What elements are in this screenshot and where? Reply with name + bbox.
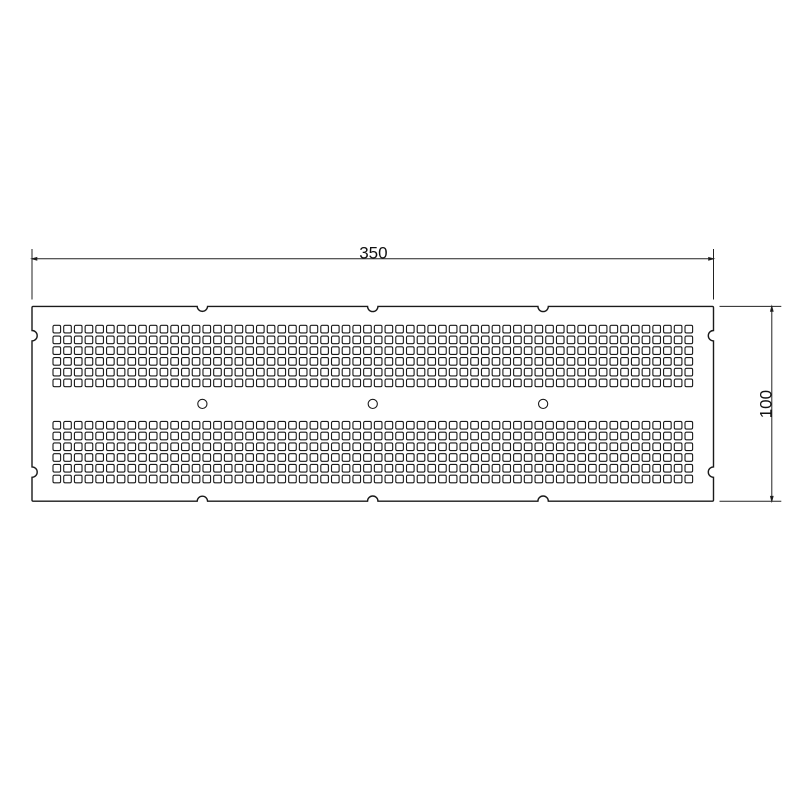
svg-text:350: 350 — [359, 243, 387, 262]
svg-text:100: 100 — [756, 390, 775, 418]
